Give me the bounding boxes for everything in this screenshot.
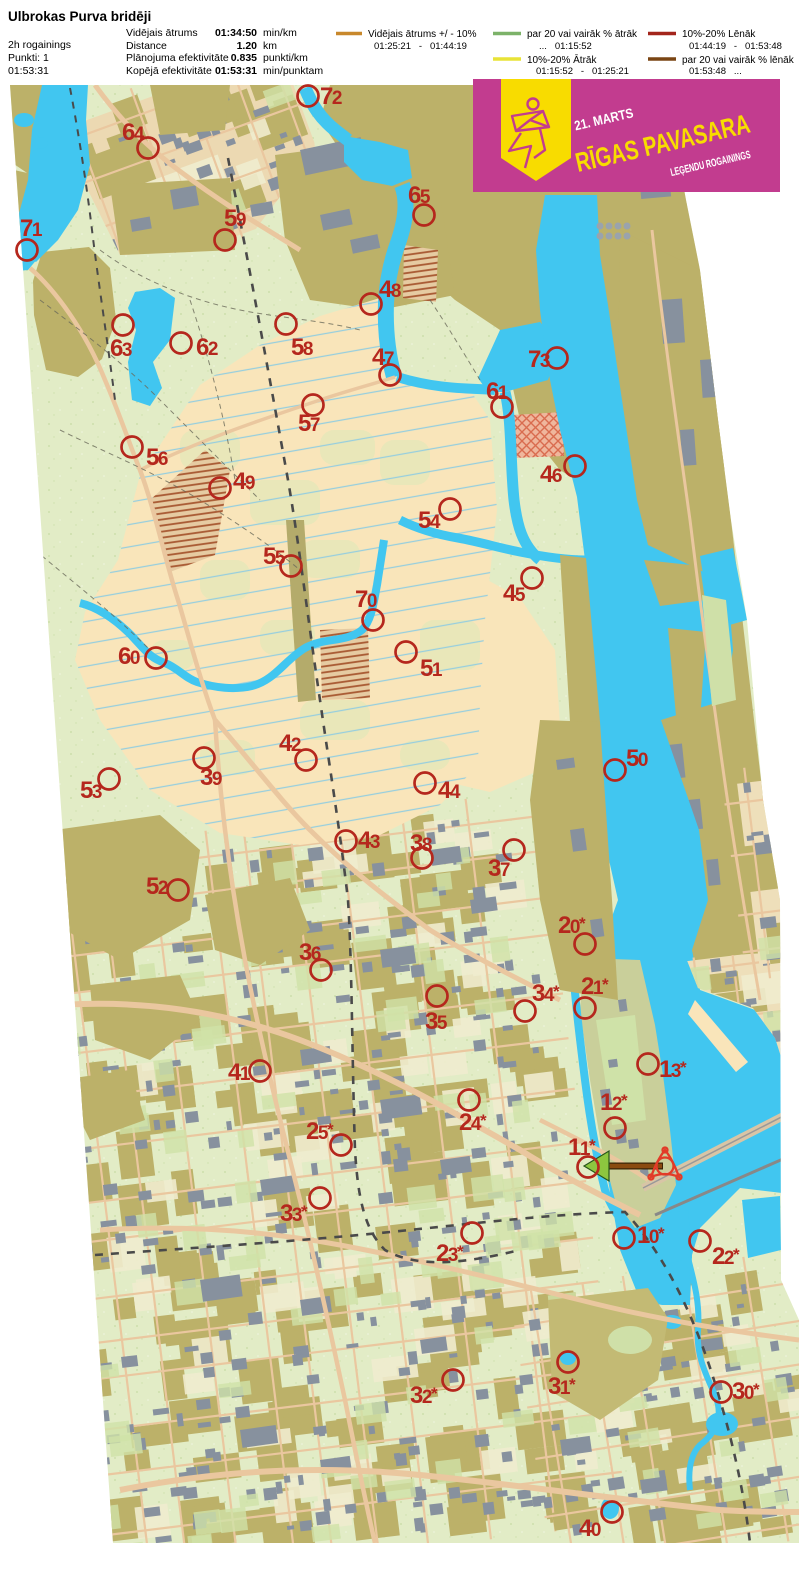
svg-text:35: 35 bbox=[425, 1008, 448, 1035]
svg-text:46: 46 bbox=[540, 461, 562, 488]
svg-text:... 01:15:52: ... 01:15:52 bbox=[539, 41, 592, 52]
svg-text:min/punktam: min/punktam bbox=[263, 65, 323, 77]
svg-text:37: 37 bbox=[488, 855, 510, 882]
svg-text:01:25:21 - 01:44:19: 01:25:21 - 01:44:19 bbox=[374, 41, 467, 52]
svg-text:km: km bbox=[263, 40, 277, 52]
svg-text:52: 52 bbox=[146, 873, 168, 900]
svg-text:40: 40 bbox=[579, 1515, 601, 1542]
svg-text:59: 59 bbox=[224, 205, 246, 232]
svg-text:47: 47 bbox=[372, 344, 394, 371]
svg-text:Ulbrokas Purva bridēji: Ulbrokas Purva bridēji bbox=[8, 9, 151, 24]
svg-text:45: 45 bbox=[503, 580, 526, 607]
svg-text:70: 70 bbox=[355, 586, 377, 613]
svg-text:54: 54 bbox=[418, 507, 441, 534]
svg-text:01:15:52 - 01:25:21: 01:15:52 - 01:25:21 bbox=[536, 66, 629, 77]
svg-text:73: 73 bbox=[528, 346, 550, 373]
svg-text:56: 56 bbox=[146, 444, 168, 471]
svg-text:43: 43 bbox=[358, 827, 380, 854]
svg-text:Vidējais ātrums: Vidējais ātrums bbox=[126, 27, 198, 39]
svg-text:57: 57 bbox=[298, 410, 320, 437]
svg-text:36: 36 bbox=[299, 939, 321, 966]
svg-text:51: 51 bbox=[420, 655, 443, 682]
svg-text:01:44:19 - 01:53:48: 01:44:19 - 01:53:48 bbox=[689, 41, 782, 52]
svg-text:58: 58 bbox=[291, 334, 313, 361]
svg-text:71: 71 bbox=[20, 215, 43, 242]
svg-text:Punkti: 1: Punkti: 1 bbox=[8, 52, 49, 64]
svg-text:01:53:31: 01:53:31 bbox=[8, 65, 49, 77]
svg-text:48: 48 bbox=[379, 276, 401, 303]
svg-text:Vidējais ātrums +/ - 10%: Vidējais ātrums +/ - 10% bbox=[368, 29, 477, 40]
svg-text:10%-20% Ātrāk: 10%-20% Ātrāk bbox=[527, 54, 597, 66]
svg-text:42: 42 bbox=[279, 730, 301, 757]
svg-text:38: 38 bbox=[410, 830, 432, 857]
svg-text:60: 60 bbox=[118, 643, 140, 670]
svg-text:55: 55 bbox=[263, 543, 286, 570]
svg-text:49: 49 bbox=[233, 468, 255, 495]
svg-text:min/km: min/km bbox=[263, 27, 297, 39]
svg-text:44: 44 bbox=[438, 777, 461, 804]
svg-text:41: 41 bbox=[228, 1059, 251, 1086]
svg-text:65: 65 bbox=[408, 182, 431, 209]
svg-text:punkti/km: punkti/km bbox=[263, 52, 308, 64]
svg-text:Distance: Distance bbox=[126, 40, 167, 52]
svg-text:1.20: 1.20 bbox=[237, 40, 258, 52]
svg-text:64: 64 bbox=[122, 119, 145, 146]
svg-text:par 20 vai vairāk % lēnāk: par 20 vai vairāk % lēnāk bbox=[682, 55, 795, 66]
svg-text:39: 39 bbox=[200, 764, 222, 791]
svg-text:72: 72 bbox=[320, 83, 342, 110]
svg-text:01:34:50: 01:34:50 bbox=[215, 27, 257, 39]
svg-text:53: 53 bbox=[80, 777, 102, 804]
svg-text:10%-20% Lēnāk: 10%-20% Lēnāk bbox=[682, 29, 756, 40]
svg-text:2h rogainings: 2h rogainings bbox=[8, 39, 71, 51]
svg-text:01:53:31: 01:53:31 bbox=[215, 65, 257, 77]
svg-text:Kopējā efektivitāte: Kopējā efektivitāte bbox=[126, 65, 212, 77]
svg-text:Plānojuma efektivitāte: Plānojuma efektivitāte bbox=[126, 52, 229, 64]
svg-text:01:53:48 ...: 01:53:48 ... bbox=[689, 66, 742, 77]
svg-text:62: 62 bbox=[196, 334, 218, 361]
svg-text:0.835: 0.835 bbox=[231, 52, 257, 64]
svg-text:61: 61 bbox=[486, 378, 509, 405]
svg-text:63: 63 bbox=[110, 335, 132, 362]
svg-text:50: 50 bbox=[626, 745, 648, 772]
svg-text:par 20 vai vairāk % ātrāk: par 20 vai vairāk % ātrāk bbox=[527, 29, 638, 40]
